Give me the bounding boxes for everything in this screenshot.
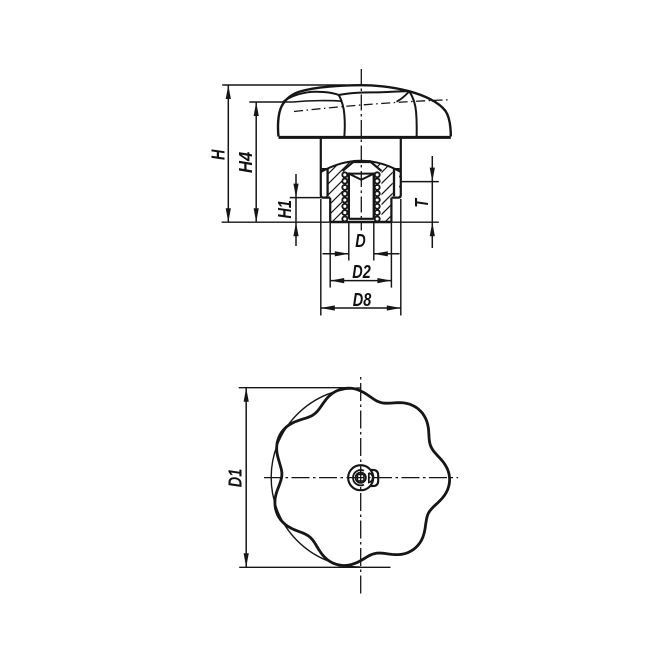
svg-text:H1: H1 [274,200,295,218]
svg-text:H: H [208,149,229,160]
svg-text:H4: H4 [235,152,256,173]
svg-text:D1: D1 [225,469,246,487]
svg-text:D2: D2 [352,261,371,282]
svg-text:D: D [355,230,365,251]
svg-text:D8: D8 [353,289,372,310]
